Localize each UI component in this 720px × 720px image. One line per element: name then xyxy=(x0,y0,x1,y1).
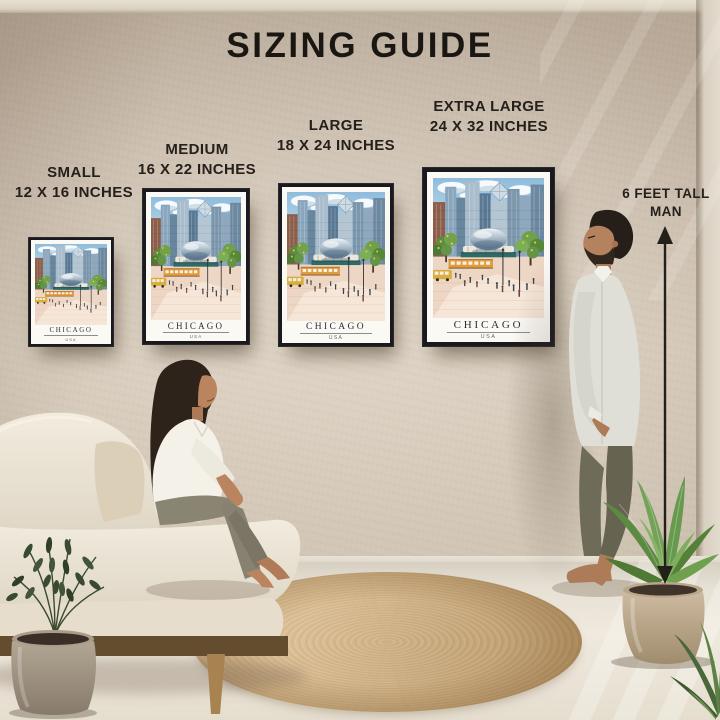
poster-print: CHICAGO USA xyxy=(146,192,246,341)
size-dimensions: 18 X 24 INCHES xyxy=(277,136,395,156)
poster-artwork xyxy=(287,192,385,321)
caption-divider xyxy=(163,332,230,333)
size-dimensions: 12 X 16 INCHES xyxy=(15,183,133,203)
height-arrow-icon xyxy=(648,226,682,584)
size-name: EXTRA LARGE xyxy=(430,97,548,117)
poster-print: CHICAGO USA xyxy=(282,187,390,343)
size-label-medium: MEDIUM 16 X 22 INCHES xyxy=(138,140,256,180)
poster-country: USA xyxy=(287,335,385,341)
sizing-guide-scene: SIZING GUIDE SMALL 12 X 16 INCHES MEDIUM… xyxy=(0,0,720,720)
poster-caption: CHICAGO USA xyxy=(35,325,107,344)
size-name: LARGE xyxy=(277,116,395,136)
height-marker-line1: 6 FEET TALL xyxy=(622,185,709,203)
poster-country: USA xyxy=(35,337,107,342)
page-title: SIZING GUIDE xyxy=(226,26,493,66)
poster-medium: CHICAGO USA xyxy=(142,188,250,345)
poster-caption: CHICAGO USA xyxy=(287,321,385,343)
poster-artwork xyxy=(35,244,107,325)
caption-divider xyxy=(300,333,373,334)
size-label-small: SMALL 12 X 16 INCHES xyxy=(15,163,133,203)
poster-artwork xyxy=(151,197,241,320)
woman-sitting xyxy=(98,352,298,608)
poster-city-title: CHICAGO xyxy=(287,322,385,332)
poster-city-title: CHICAGO xyxy=(151,321,241,331)
size-dimensions: 24 X 32 INCHES xyxy=(430,117,548,137)
poster-caption: CHICAGO USA xyxy=(151,320,241,341)
poster-print: CHICAGO USA xyxy=(31,240,111,344)
poster-small: CHICAGO USA xyxy=(28,237,114,347)
size-name: MEDIUM xyxy=(138,140,256,160)
size-label-large: LARGE 18 X 24 INCHES xyxy=(277,116,395,156)
poster-large: CHICAGO USA xyxy=(278,183,394,347)
size-label-extra-large: EXTRA LARGE 24 X 32 INCHES xyxy=(430,97,548,137)
caption-divider xyxy=(44,335,97,336)
potted-plant-left xyxy=(0,533,118,720)
size-dimensions: 16 X 22 INCHES xyxy=(138,160,256,180)
poster-country: USA xyxy=(151,334,241,339)
size-name: SMALL xyxy=(15,163,133,183)
poster-city-title: CHICAGO xyxy=(35,326,107,334)
